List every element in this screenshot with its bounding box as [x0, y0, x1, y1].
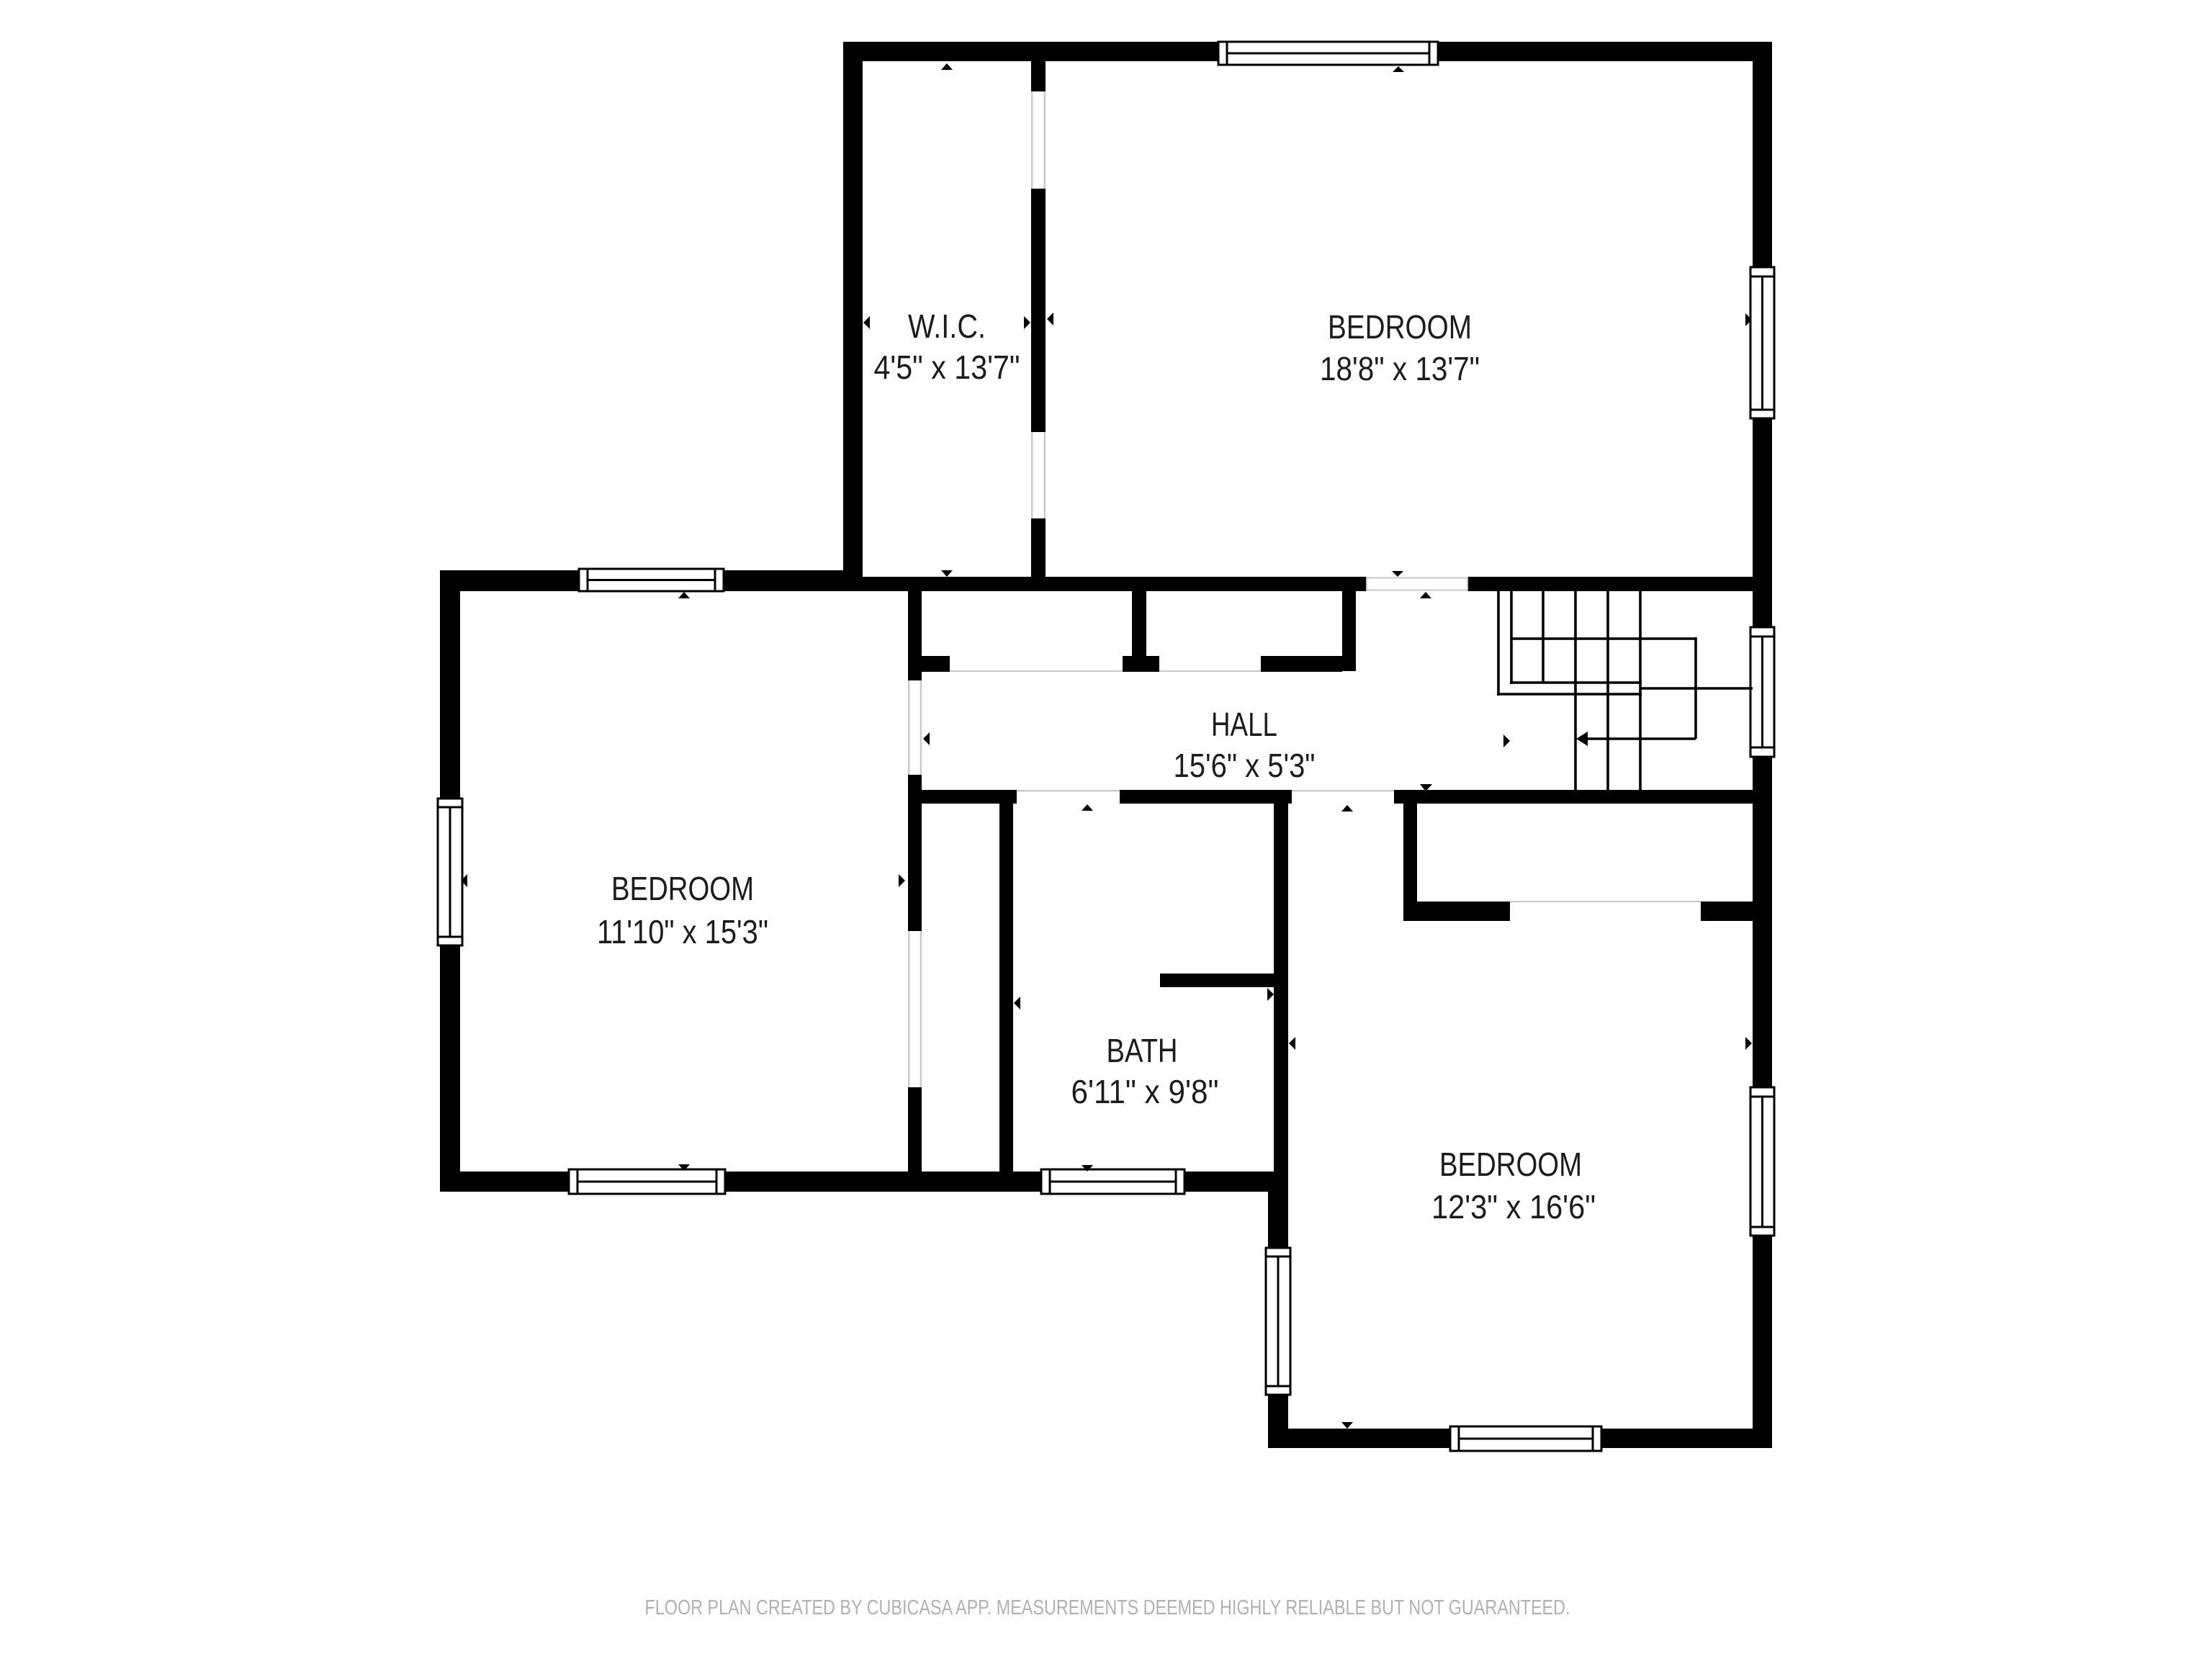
svg-text:W.I.C.: W.I.C.	[908, 307, 986, 345]
svg-text:4'5" x 13'7": 4'5" x 13'7"	[874, 349, 1020, 386]
svg-text:BATH: BATH	[1107, 1032, 1178, 1069]
svg-text:HALL: HALL	[1211, 706, 1277, 743]
svg-text:BEDROOM: BEDROOM	[1328, 308, 1472, 346]
svg-text:6'11" x 9'8": 6'11" x 9'8"	[1071, 1073, 1219, 1110]
svg-text:11'10" x 15'3": 11'10" x 15'3"	[597, 913, 768, 950]
svg-text:BEDROOM: BEDROOM	[611, 870, 754, 907]
svg-text:18'8" x 13'7": 18'8" x 13'7"	[1320, 350, 1480, 387]
svg-text:12'3" x 16'6": 12'3" x 16'6"	[1431, 1188, 1596, 1226]
svg-text:BEDROOM: BEDROOM	[1439, 1146, 1582, 1183]
svg-text:15'6" x 5'3": 15'6" x 5'3"	[1174, 747, 1316, 784]
svg-text:FLOOR PLAN CREATED BY CUBICASA: FLOOR PLAN CREATED BY CUBICASA APP. MEAS…	[645, 1596, 1570, 1619]
